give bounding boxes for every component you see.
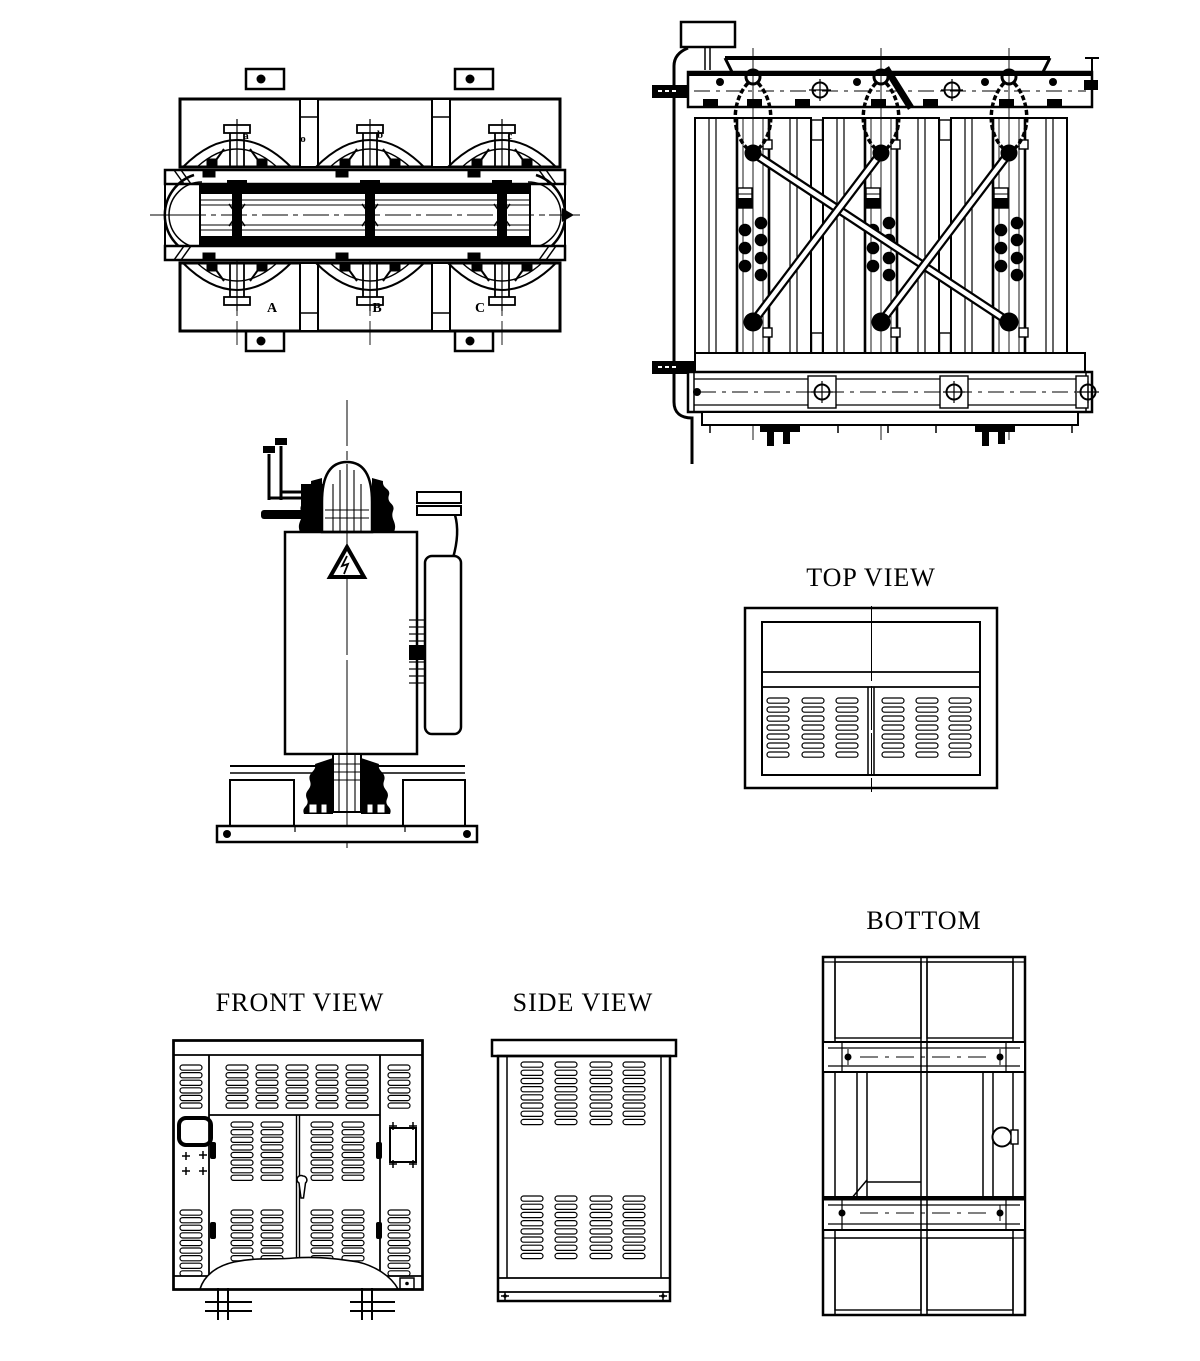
upper-bushing-assembly: [261, 438, 395, 532]
enclosure-bottom-view-drawing: [820, 952, 1028, 1320]
top-louver-band: [180, 1065, 410, 1108]
enclosure-top-view-drawing: [743, 606, 999, 792]
top-cells: [823, 962, 1025, 1038]
base-feet: [246, 331, 493, 351]
anchor-bolts-right: [350, 1288, 395, 1320]
corner-box: [400, 1278, 414, 1289]
enclosure-side-view-drawing: [490, 1038, 678, 1318]
louver-panel-left: [767, 698, 858, 757]
base-rail: [702, 412, 1078, 446]
warning-triangle-icon: [330, 547, 364, 577]
core-coil-plan-view-drawing: a o b c A B C: [150, 55, 580, 367]
terminal-label-hv-c: C: [475, 301, 485, 316]
anchor-mark-right: [659, 1292, 667, 1300]
bottom-view-label: BOTTOM: [818, 906, 1030, 936]
enclosure-front-view-drawing: [172, 1038, 428, 1330]
transformer-drawing-sheet: a o b c A B C: [0, 0, 1200, 1361]
base-plate: [217, 826, 477, 842]
terminal-label-lv-b: b: [377, 129, 383, 141]
roof-band: [492, 1040, 676, 1056]
door-louvers-top: [231, 1122, 364, 1180]
terminal-label-lv-a: a: [243, 130, 249, 142]
louver-group-bottom: [521, 1196, 645, 1259]
louver-group-top: [521, 1062, 645, 1125]
upper-channel-beam: [823, 1042, 1025, 1072]
side-view-label: SIDE VIEW: [488, 988, 678, 1018]
lower-channel-beam: [823, 1197, 1025, 1230]
lower-clamp: [165, 246, 565, 260]
core-coil-front-view-drawing: [648, 12, 1193, 467]
terminal-label-lv-o: o: [300, 133, 306, 145]
middle-opening: [840, 1072, 993, 1212]
door-split: [297, 1115, 300, 1278]
door-lock-keyhole: [297, 1175, 307, 1198]
center-divider: [921, 957, 927, 1315]
terminal-label-hv-a: A: [267, 301, 278, 316]
lifting-lugs: [246, 69, 493, 89]
lower-clamp-band: [688, 353, 1092, 412]
anchor-bolts-left: [205, 1288, 252, 1320]
core-coil-side-view-drawing: [205, 398, 495, 850]
enclosure-outline: [498, 1056, 670, 1301]
terminal-label-hv-b: B: [372, 301, 381, 316]
inspection-window: [179, 1118, 211, 1175]
cable-cover-mound: [200, 1257, 398, 1289]
gland-hole: [993, 1128, 1019, 1147]
top-view-label: TOP VIEW: [740, 563, 1002, 593]
bottom-cells: [823, 1238, 1025, 1310]
nameplate: [389, 1122, 417, 1168]
front-view-label: FRONT VIEW: [170, 988, 430, 1018]
terminal-label-lv-c: c: [508, 130, 513, 142]
louver-panel-right: [882, 698, 971, 757]
anchor-mark-left: [501, 1292, 509, 1300]
